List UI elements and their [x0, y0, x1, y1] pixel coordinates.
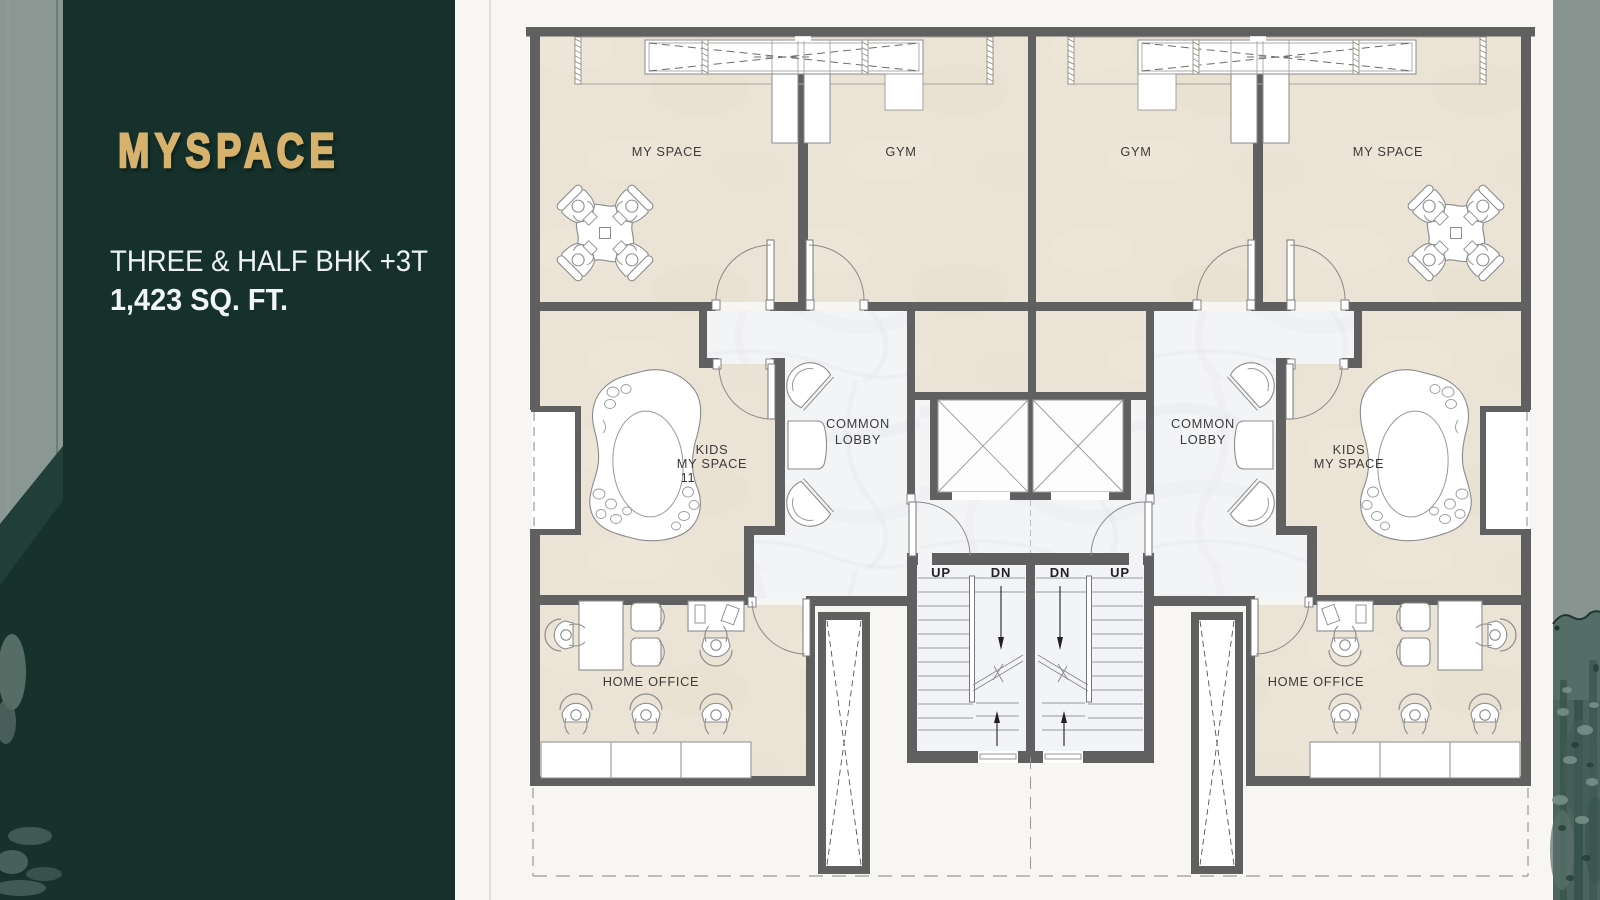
svg-text:MY SPACE: MY SPACE	[677, 456, 748, 471]
svg-text:11: 11	[681, 470, 696, 485]
svg-text:MY SPACE: MY SPACE	[1353, 144, 1424, 159]
svg-text:MY SPACE: MY SPACE	[1314, 456, 1385, 471]
svg-text:COMMON: COMMON	[826, 416, 890, 431]
svg-text:DN: DN	[1050, 565, 1070, 580]
svg-text:KIDS: KIDS	[696, 442, 729, 457]
svg-text:HOME OFFICE: HOME OFFICE	[603, 674, 700, 689]
svg-text:GYM: GYM	[885, 144, 916, 159]
svg-text:UP: UP	[931, 565, 951, 580]
svg-text:LOBBY: LOBBY	[835, 432, 881, 447]
svg-text:LOBBY: LOBBY	[1180, 432, 1226, 447]
svg-text:HOME OFFICE: HOME OFFICE	[1268, 674, 1365, 689]
svg-text:UP: UP	[1110, 565, 1130, 580]
svg-text:COMMON: COMMON	[1171, 416, 1235, 431]
svg-text:MY SPACE: MY SPACE	[632, 144, 703, 159]
svg-text:KIDS: KIDS	[1333, 442, 1366, 457]
svg-text:GYM: GYM	[1120, 144, 1151, 159]
svg-text:DN: DN	[991, 565, 1011, 580]
